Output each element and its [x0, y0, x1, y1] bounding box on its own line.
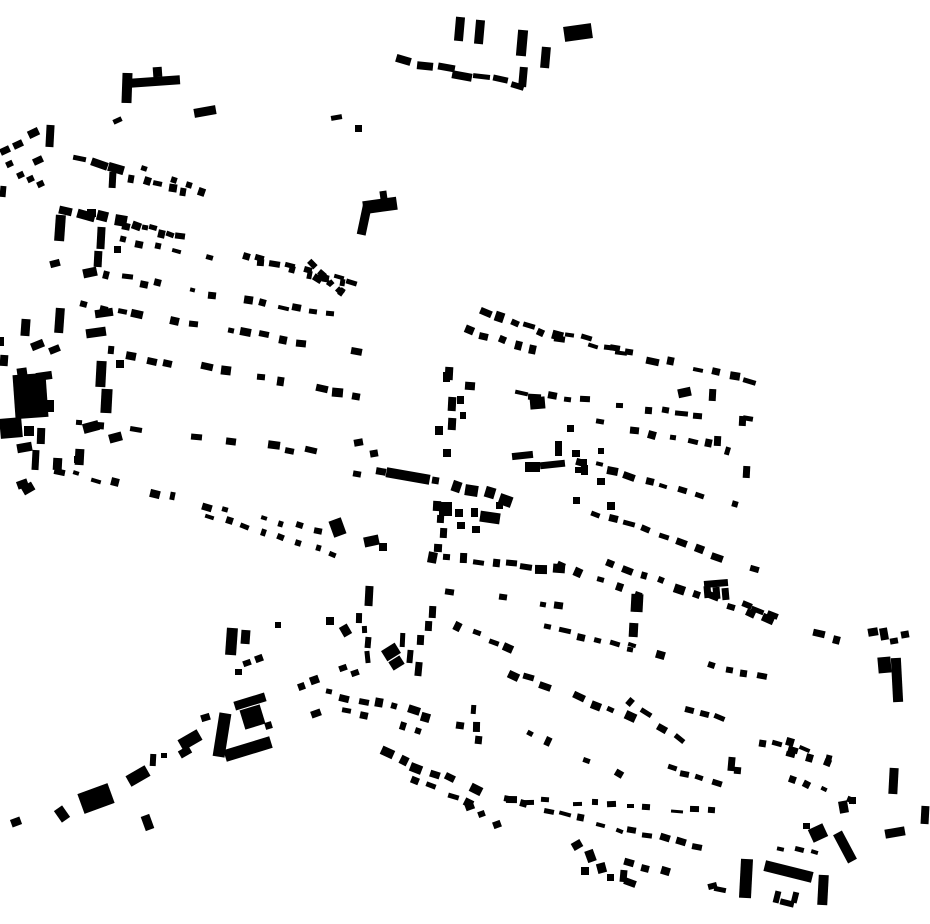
building-footprint — [407, 705, 421, 717]
building-footprint — [515, 389, 528, 396]
building-footprint — [593, 637, 602, 644]
building-footprint — [640, 572, 648, 581]
building-footprint — [16, 367, 27, 376]
building-footprint — [645, 407, 653, 415]
building-footprint — [623, 710, 637, 723]
building-footprint — [739, 858, 753, 898]
building-footprint — [257, 374, 265, 381]
building-footprint — [626, 826, 636, 834]
building-footprint — [473, 20, 484, 45]
building-footprint — [37, 428, 46, 444]
building-footprint — [108, 172, 116, 188]
building-footprint — [399, 722, 407, 731]
building-footprint — [395, 54, 412, 66]
building-footprint — [457, 396, 464, 404]
building-footprint — [100, 389, 112, 414]
building-footprint — [417, 61, 434, 71]
building-footprint — [356, 613, 362, 623]
building-footprint — [514, 340, 523, 350]
building-footprint — [539, 601, 546, 607]
building-footprint — [363, 535, 380, 548]
building-footprint — [708, 389, 716, 401]
building-footprint — [548, 392, 558, 400]
building-footprint — [143, 176, 152, 185]
building-footprint — [584, 849, 597, 863]
building-footprint — [511, 450, 533, 459]
building-footprint — [369, 449, 378, 457]
building-footprint — [457, 522, 465, 529]
building-footprint — [155, 242, 162, 249]
building-footprint — [749, 564, 759, 572]
building-footprint — [0, 417, 23, 439]
building-footprint — [429, 769, 440, 778]
building-footprint — [175, 233, 186, 240]
building-footprint — [605, 558, 615, 568]
building-footprint — [555, 441, 562, 456]
building-footprint — [114, 246, 121, 253]
building-footprint — [433, 501, 442, 511]
building-footprint — [82, 266, 98, 278]
building-footprint — [168, 183, 177, 192]
building-footprint — [294, 539, 302, 547]
building-footprint — [595, 461, 603, 467]
building-footprint — [867, 627, 878, 637]
building-footprint — [350, 669, 360, 677]
building-footprint — [694, 774, 704, 781]
building-footprint — [795, 846, 805, 853]
building-footprint — [416, 635, 424, 645]
building-footprint — [528, 344, 537, 354]
building-footprint — [380, 746, 396, 760]
building-footprint — [12, 139, 24, 150]
building-footprint — [492, 74, 508, 83]
building-footprint — [693, 590, 702, 599]
building-footprint — [95, 361, 106, 387]
building-footprint — [32, 155, 44, 166]
building-footprint — [353, 470, 362, 477]
building-footprint — [355, 125, 362, 132]
building-footprint — [364, 586, 373, 606]
building-footprint — [539, 459, 565, 469]
building-footprint — [666, 356, 675, 365]
building-footprint — [434, 544, 442, 552]
building-footprint — [708, 661, 716, 668]
building-footprint — [477, 810, 486, 818]
building-footprint — [375, 467, 386, 476]
building-footprint — [712, 779, 723, 788]
building-footprint — [763, 860, 813, 883]
building-footprint — [331, 388, 342, 398]
building-footprint — [197, 187, 206, 197]
building-footprint — [26, 175, 35, 183]
building-footprint — [400, 633, 406, 647]
building-footprint — [693, 367, 704, 373]
building-footprint — [277, 304, 288, 311]
building-footprint — [261, 515, 268, 521]
building-footprint — [362, 626, 367, 633]
building-footprint — [326, 310, 334, 316]
building-footprint — [205, 254, 214, 261]
building-footprint — [73, 155, 87, 163]
building-footprint — [724, 446, 731, 455]
building-footprint — [278, 335, 287, 344]
building-footprint — [675, 837, 687, 847]
building-footprint — [314, 527, 323, 534]
building-footprint — [493, 559, 500, 567]
building-footprint — [267, 441, 280, 451]
building-footprint — [580, 396, 591, 402]
building-footprint — [581, 867, 589, 875]
building-footprint — [0, 145, 11, 156]
building-footprint — [572, 690, 586, 702]
building-footprint — [639, 708, 652, 719]
building-footprint — [604, 345, 614, 351]
building-footprint — [659, 483, 668, 489]
building-footprint — [268, 260, 280, 268]
building-footprint — [260, 528, 267, 536]
building-footprint — [308, 675, 319, 686]
building-footprint — [523, 321, 536, 329]
building-footprint — [740, 669, 748, 677]
building-footprint — [460, 412, 466, 419]
building-footprint — [150, 754, 157, 766]
building-footprint — [900, 630, 909, 638]
building-footprint — [46, 400, 54, 412]
building-footprint — [364, 637, 371, 649]
building-footprint — [472, 526, 480, 533]
building-footprint — [554, 602, 564, 610]
building-footprint — [523, 673, 535, 682]
building-footprint — [116, 360, 124, 368]
building-footprint — [316, 544, 323, 551]
building-footprint — [147, 357, 158, 366]
building-footprint — [103, 270, 111, 279]
building-footprint — [879, 627, 889, 640]
building-footprint — [721, 588, 729, 601]
building-footprint — [258, 298, 266, 306]
building-footprint — [577, 814, 585, 822]
building-footprint — [573, 566, 584, 577]
building-footprint — [623, 520, 636, 528]
building-footprint — [506, 670, 520, 682]
building-footprint — [256, 259, 263, 267]
building-footprint — [119, 236, 126, 243]
building-footprint — [726, 603, 735, 611]
building-footprint — [125, 765, 150, 786]
building-footprint — [5, 160, 14, 168]
building-footprint — [623, 858, 634, 868]
building-footprint — [580, 334, 592, 342]
building-footprint — [189, 320, 199, 327]
building-footprint — [571, 839, 584, 851]
building-footprint — [0, 354, 8, 366]
building-footprint — [674, 733, 686, 744]
building-footprint — [16, 441, 32, 452]
building-footprint — [540, 46, 551, 68]
building-footprint — [573, 802, 583, 806]
building-footprint — [623, 877, 637, 888]
building-footprint — [714, 713, 726, 722]
building-footprint — [464, 484, 478, 497]
building-footprint — [475, 736, 483, 745]
building-footprint — [326, 617, 334, 625]
building-footprint — [577, 633, 587, 642]
building-footprint — [77, 783, 114, 814]
building-footprint — [541, 797, 549, 802]
building-footprint — [165, 231, 175, 239]
building-footprint — [243, 295, 253, 304]
building-footprint — [53, 468, 65, 476]
building-footprint — [338, 693, 349, 703]
building-footprint — [675, 411, 688, 417]
building-footprint — [444, 773, 456, 783]
building-footprint — [472, 559, 483, 566]
building-footprint — [328, 517, 346, 537]
building-footprint — [48, 344, 61, 355]
building-footprint — [704, 439, 712, 448]
building-footprint — [92, 421, 104, 428]
building-footprint — [590, 700, 602, 711]
building-footprint — [640, 864, 649, 873]
building-footprint — [660, 866, 671, 876]
building-footprint — [591, 799, 597, 805]
building-footprint — [677, 486, 687, 494]
building-footprint — [805, 753, 814, 763]
building-footprint — [646, 357, 661, 367]
building-footprint — [431, 476, 439, 484]
building-footprint — [409, 762, 423, 775]
building-footprint — [692, 843, 703, 851]
building-footprint — [10, 817, 22, 828]
building-footprint — [204, 513, 214, 519]
building-footprint — [817, 875, 829, 905]
building-footprint — [554, 335, 566, 342]
building-footprint — [353, 438, 363, 446]
building-footprint — [771, 740, 782, 748]
building-footprint — [407, 650, 414, 664]
building-footprint — [172, 248, 181, 254]
building-footprint — [607, 874, 614, 881]
building-footprint — [399, 755, 410, 767]
building-footprint — [498, 335, 507, 344]
building-footprint — [884, 826, 905, 838]
building-footprint — [621, 565, 634, 575]
building-footprint — [616, 403, 623, 408]
building-footprint — [707, 807, 714, 813]
building-footprint — [420, 712, 431, 723]
building-footprint — [277, 520, 284, 528]
building-footprint — [162, 359, 172, 367]
building-footprint — [112, 116, 122, 124]
building-footprint — [575, 458, 585, 467]
building-footprint — [201, 502, 213, 511]
building-footprint — [524, 800, 534, 805]
building-footprint — [921, 806, 930, 824]
building-footprint — [284, 447, 294, 455]
building-footprint — [658, 533, 669, 541]
building-footprint — [130, 220, 141, 231]
building-footprint — [645, 477, 655, 486]
building-footprint — [49, 258, 60, 267]
building-footprint — [190, 434, 202, 441]
building-footprint — [148, 224, 157, 231]
building-footprint-map — [0, 0, 930, 924]
building-footprint — [597, 478, 605, 485]
building-footprint — [525, 462, 540, 472]
building-footprint — [222, 506, 229, 512]
building-footprint — [502, 643, 514, 654]
building-footprint — [141, 225, 148, 231]
building-footprint — [20, 318, 30, 336]
building-footprint — [125, 351, 136, 361]
building-footprint — [177, 729, 202, 750]
building-footprint — [118, 308, 128, 315]
building-footprint — [443, 372, 450, 382]
building-footprint — [471, 508, 478, 517]
building-footprint — [803, 823, 810, 829]
building-footprint — [297, 682, 306, 691]
building-footprint — [732, 500, 739, 507]
building-footprint — [791, 891, 799, 903]
building-footprint — [26, 127, 39, 139]
building-footprint — [444, 588, 454, 595]
building-footprint — [657, 576, 665, 584]
building-footprint — [131, 309, 144, 319]
building-footprint — [73, 470, 80, 476]
building-footprint — [435, 426, 443, 435]
building-footprint — [742, 466, 750, 478]
building-footprint — [76, 419, 82, 425]
building-footprint — [891, 658, 903, 702]
building-footprint — [127, 175, 135, 184]
building-footprint — [464, 324, 475, 335]
building-footprint — [567, 425, 574, 432]
building-footprint — [606, 466, 618, 476]
building-footprint — [687, 438, 698, 446]
building-footprint — [647, 430, 656, 440]
building-footprint — [655, 650, 666, 660]
building-footprint — [625, 697, 635, 707]
building-footprint — [788, 775, 797, 784]
building-footprint — [31, 450, 39, 470]
building-footprint — [456, 722, 465, 730]
building-footprint — [240, 327, 252, 337]
building-footprint — [310, 708, 322, 718]
building-footprint — [656, 723, 668, 734]
building-footprint — [595, 418, 604, 425]
building-footprint — [121, 273, 132, 280]
building-footprint — [90, 158, 108, 171]
building-footprint — [810, 849, 818, 855]
building-footprint — [54, 307, 65, 333]
building-footprint — [193, 105, 216, 118]
building-footprint — [813, 629, 827, 638]
building-footprint — [90, 478, 101, 485]
building-footprint — [170, 176, 177, 183]
building-footprint — [200, 712, 211, 721]
building-footprint — [729, 371, 740, 380]
building-footprint — [615, 583, 624, 593]
building-footprint — [890, 637, 899, 644]
building-footprint — [96, 210, 109, 222]
building-footprint — [24, 426, 34, 436]
building-footprint — [629, 426, 639, 434]
building-footprint — [582, 757, 590, 764]
building-footprint — [673, 583, 686, 595]
building-footprint — [36, 371, 53, 381]
building-footprint — [94, 251, 103, 267]
building-footprint — [777, 846, 784, 851]
building-footprint — [464, 382, 475, 390]
building-footprint — [596, 576, 604, 583]
building-footprint — [110, 477, 120, 487]
building-footprint — [642, 833, 653, 839]
building-footprint — [565, 332, 574, 337]
building-footprint — [693, 412, 702, 419]
building-footprint — [85, 326, 106, 338]
building-footprint — [528, 394, 541, 401]
building-footprint — [379, 190, 387, 200]
building-footprint — [185, 181, 192, 188]
building-footprint — [609, 514, 619, 523]
building-footprint — [180, 187, 187, 195]
building-footprint — [472, 629, 481, 636]
building-footprint — [488, 638, 499, 646]
building-footprint — [516, 30, 528, 57]
building-footprint — [139, 280, 148, 289]
building-footprint — [535, 565, 547, 575]
building-footprint — [472, 73, 489, 80]
building-footprint — [288, 266, 296, 275]
building-footprint — [226, 437, 237, 445]
building-footprint — [140, 165, 148, 172]
figure-ground-map-page — [0, 0, 930, 924]
building-footprint — [520, 564, 533, 571]
building-footprint — [573, 497, 580, 504]
building-footprint — [452, 70, 473, 81]
building-footprint — [107, 345, 114, 354]
building-footprint — [325, 689, 332, 695]
building-footprint — [473, 722, 481, 732]
building-footprint — [838, 800, 849, 813]
building-footprint — [346, 279, 358, 287]
building-footprint — [470, 705, 476, 714]
building-footprint — [414, 662, 422, 677]
building-footprint — [414, 727, 422, 735]
building-footprint — [426, 781, 437, 789]
building-footprint — [242, 252, 251, 261]
building-footprint — [427, 551, 438, 563]
building-footprint — [595, 862, 606, 874]
building-footprint — [459, 553, 467, 563]
building-footprint — [149, 489, 160, 499]
building-footprint — [536, 328, 545, 337]
building-footprint — [443, 553, 451, 559]
building-footprint — [264, 721, 273, 730]
building-footprint — [152, 67, 162, 78]
building-footprint — [443, 449, 451, 457]
building-footprint — [563, 23, 593, 42]
building-footprint — [54, 805, 70, 822]
building-footprint — [538, 682, 552, 693]
building-footprint — [563, 396, 571, 402]
building-footprint — [304, 446, 317, 454]
building-footprint — [228, 328, 235, 334]
building-footprint — [223, 736, 272, 762]
building-footprint — [543, 808, 554, 815]
building-footprint — [235, 669, 242, 675]
building-footprint — [478, 332, 489, 341]
